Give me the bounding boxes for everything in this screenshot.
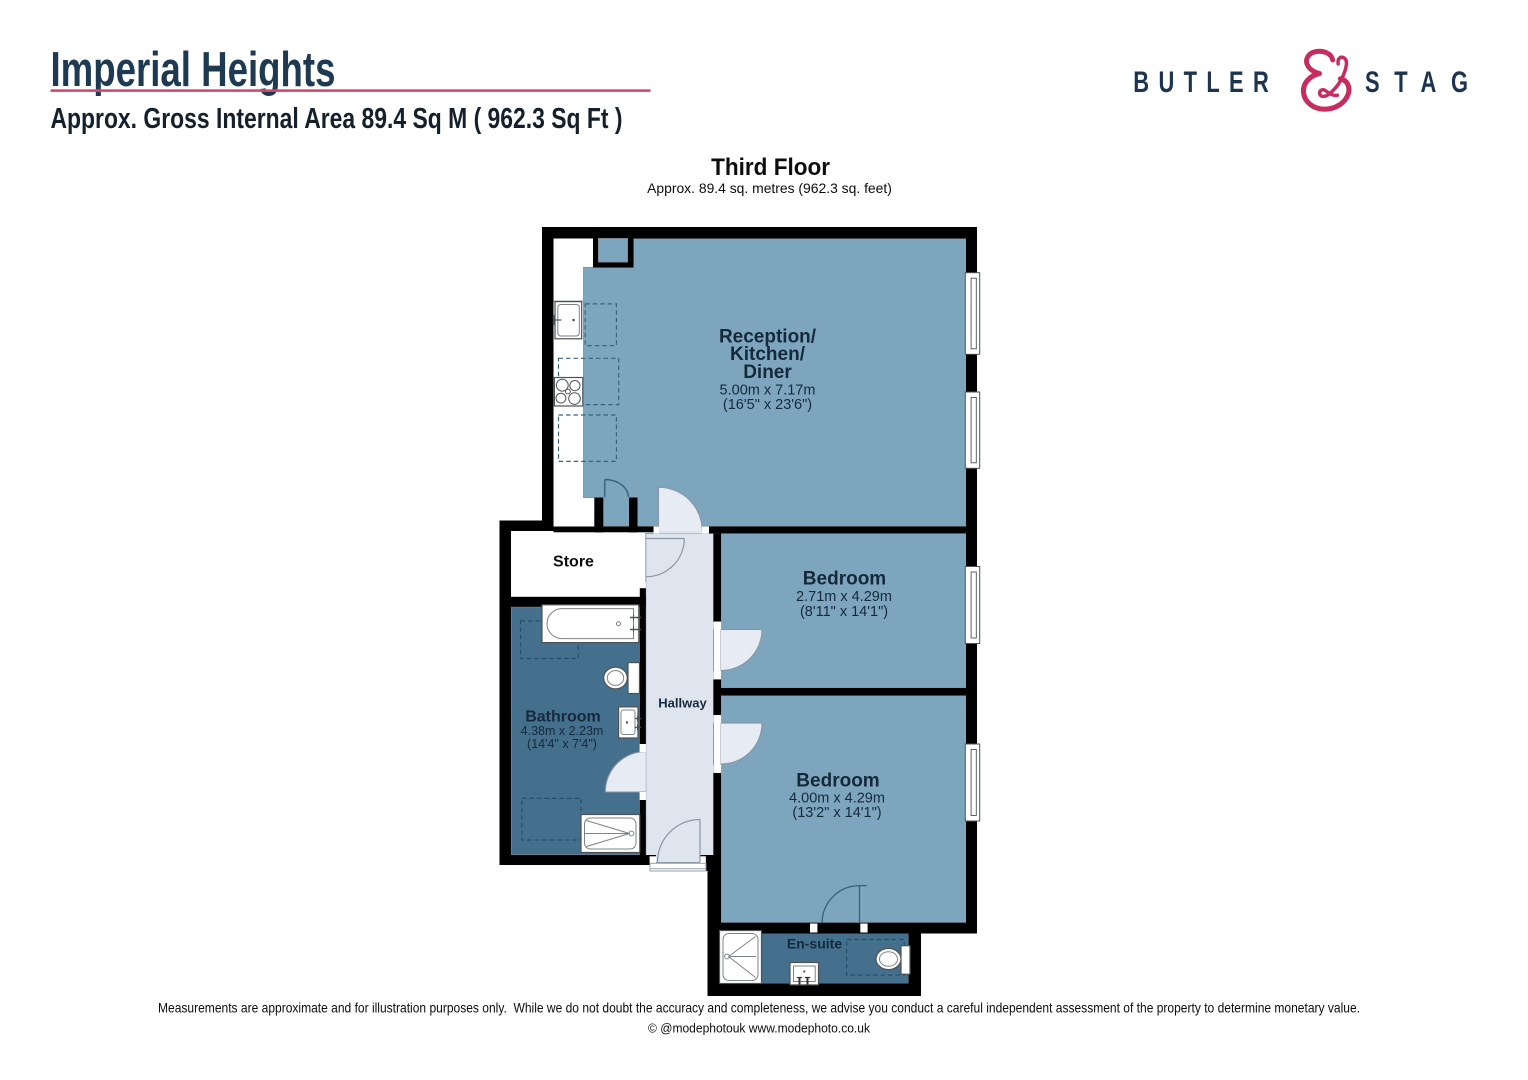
svg-text:© @modephotouk www.modephoto.c: © @modephotouk www.modephoto.co.uk — [648, 1021, 870, 1036]
svg-text:Approx. Gross Internal Area 89: Approx. Gross Internal Area 89.4 Sq M ( … — [51, 103, 623, 135]
svg-text:STAG: STAG — [1365, 65, 1483, 99]
svg-text:(14'4" x 7'4"): (14'4" x 7'4") — [527, 737, 597, 751]
svg-text:(16'5" x 23'6"): (16'5" x 23'6") — [723, 397, 812, 413]
svg-text:Third Floor: Third Floor — [711, 154, 830, 181]
svg-text:Bedroom: Bedroom — [796, 770, 879, 791]
svg-text:Hallway: Hallway — [658, 696, 707, 711]
svg-text:En-suite: En-suite — [787, 936, 842, 952]
svg-text:4.38m x 2.23m: 4.38m x 2.23m — [521, 724, 604, 738]
svg-text:4.00m x 4.29m: 4.00m x 4.29m — [789, 791, 885, 807]
svg-text:Measurements are approximate a: Measurements are approximate and for ill… — [158, 1000, 1360, 1016]
svg-text:(8'11" x 14'1"): (8'11" x 14'1") — [800, 604, 888, 620]
svg-text:2.71m x 4.29m: 2.71m x 4.29m — [796, 589, 892, 605]
svg-text:Diner: Diner — [743, 362, 792, 383]
svg-text:Imperial Heights: Imperial Heights — [51, 43, 336, 97]
svg-text:(13'2" x 14'1"): (13'2" x 14'1") — [792, 805, 881, 821]
svg-text:BUTLER: BUTLER — [1133, 65, 1278, 99]
svg-text:Approx. 89.4 sq. metres (962.3: Approx. 89.4 sq. metres (962.3 sq. feet) — [647, 180, 892, 196]
svg-text:Bedroom: Bedroom — [803, 569, 886, 590]
svg-text:Store: Store — [553, 554, 594, 571]
